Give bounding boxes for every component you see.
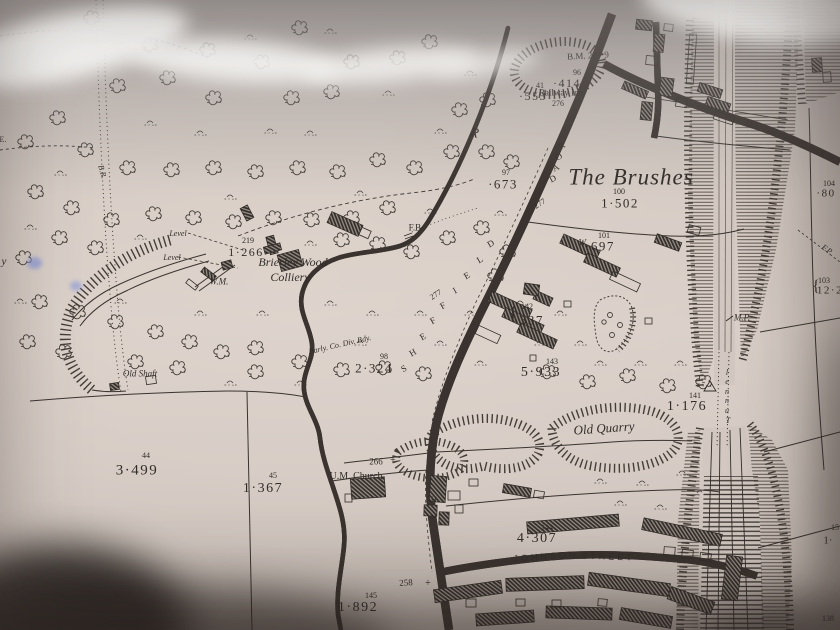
level-upper-label: Level [169, 230, 186, 238]
level-lower-label: Level [163, 254, 180, 262]
shef-e2-label: E [462, 271, 471, 282]
acre-2324-label: 2·324 [355, 362, 393, 375]
acre-80-label: ·80 [816, 189, 835, 200]
parcel-45-label: 45 [269, 472, 277, 480]
brierley-wood-label: Brierley Wood [258, 256, 327, 268]
parcel-276-label: 276 [552, 100, 564, 108]
river-initial-label: R [468, 126, 480, 142]
acre-3499-label: 3·499 [116, 464, 159, 479]
parcel-145-label: 145 [365, 592, 377, 600]
shef-h-label: H [408, 347, 418, 358]
map-labels-layer: B.M. 277·996·41441·553Railway Inn276The … [0, 0, 840, 630]
acre-337-label: ·337 [514, 314, 544, 327]
tunnel-t-label: T [726, 417, 730, 425]
um-church-label: U.M. Church [329, 472, 382, 482]
footbridge-label: F.B. [409, 224, 424, 233]
acre-4307-label: 4·307 [517, 532, 557, 546]
public-house-label: P.H. [425, 496, 438, 504]
shef-f2-label: F [439, 301, 448, 311]
street-label: STREET [581, 552, 635, 563]
shef-d-label: D [486, 238, 496, 249]
acre-122-label: 12·2 [817, 286, 840, 297]
tunnel-u-label: u [725, 407, 729, 415]
shef-s-label: S [400, 364, 409, 374]
cross-266-label: + [390, 456, 396, 466]
railway-inn-label: Railway Inn [539, 89, 583, 98]
parcel-219-label: 219 [242, 237, 254, 245]
shef-i-label: I [451, 286, 458, 295]
bench-266-label: 266 [369, 458, 383, 467]
old-quarry-label: Old Quarry [573, 419, 635, 436]
acre-5933-label: 5·933 [521, 366, 561, 380]
parcel-44-label: 44 [142, 452, 150, 460]
acre-1367-label: 1·367 [243, 482, 283, 496]
tunnel-n2-label: n [725, 388, 729, 396]
acre-1x-label: 1· [823, 536, 832, 547]
bm-2779-label: B.M. 277·9 [567, 50, 609, 61]
road-num-277a-label: 277 [533, 197, 547, 210]
road-letter-d-label: D [548, 174, 558, 185]
parcel-15-label: 15 [831, 524, 839, 532]
parly-bdy-label: Parly. Co. Div. Bdy. [308, 334, 372, 356]
shef-l-label: L [475, 255, 484, 266]
old-shaft-label: Old Shaft [123, 370, 157, 379]
edge-word-y-label: y [2, 257, 7, 268]
map-photo: B.M. 277·996·41441·553Railway Inn276The … [0, 0, 840, 630]
acre-673-label: ·673 [488, 178, 518, 191]
edge-word-e-label: E. [0, 136, 6, 144]
parcel-138-label: 138 [822, 615, 834, 623]
tunnel-e-label: e [725, 378, 729, 386]
colliery-label: Colliery [270, 271, 309, 283]
bench-258-label: 258 [399, 578, 413, 588]
the-brushes-label: The Brushes [568, 166, 693, 189]
cross-258-label: + [425, 579, 431, 589]
shef-f1-label: F [429, 316, 438, 326]
acre-1176-label: 1·176 [667, 400, 707, 414]
mile-post-label: M.P. [734, 314, 750, 323]
acre-1892-label: 1·892 [338, 601, 378, 615]
acre-697-label: ·697 [585, 240, 615, 253]
acre-1502-label: 1·502 [601, 197, 639, 210]
tunnel-l-label: l [726, 369, 728, 377]
johnson-label: JOHNSON [513, 550, 578, 564]
parcel-142-label: 142 [521, 303, 533, 311]
footpath-label: F.P. [820, 243, 834, 256]
tunnel-n1-label: n [725, 397, 729, 405]
br-path-label: B.R. [96, 164, 107, 179]
shef-e1-label: E [418, 332, 427, 343]
weighing-machine-label: W.M. [210, 278, 229, 287]
